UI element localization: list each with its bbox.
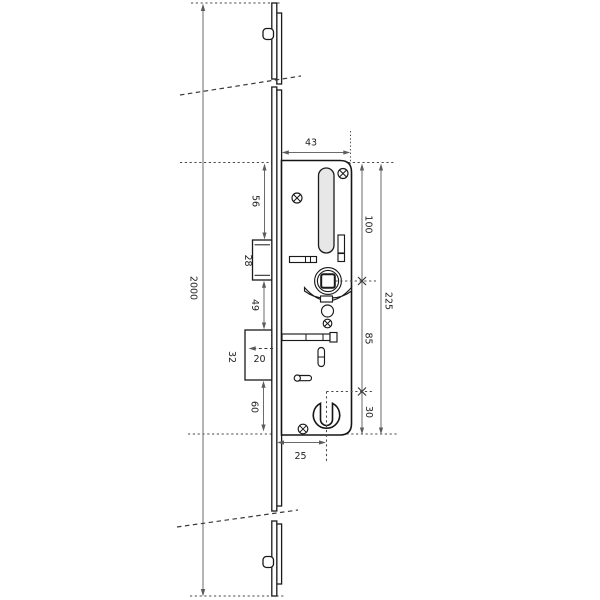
bottom-roller-cam xyxy=(263,557,274,568)
screw-icon xyxy=(292,193,302,203)
dim-label-cylinder-backset: 25 xyxy=(294,451,306,462)
handle-slot xyxy=(319,168,335,253)
faceplate xyxy=(263,3,282,596)
pivot-circle xyxy=(322,305,334,317)
spring-tab xyxy=(321,296,333,302)
guide-pin-upper xyxy=(338,235,345,253)
follower-square-hole xyxy=(321,274,335,288)
deadbolt-block: 20 xyxy=(245,330,273,380)
dim-left-chain: 56 28 49 32 60 xyxy=(226,164,267,432)
backplate-top-segment xyxy=(277,13,282,84)
drawing-canvas: 2000 56 28 49 32 60 43 100 85 30 xyxy=(0,0,600,600)
screw-icon xyxy=(338,169,348,179)
latch-bar xyxy=(290,257,317,263)
dim-label-faceplate-length: 2000 xyxy=(187,276,198,300)
dim-label-deadbolt-throw: 20 xyxy=(253,354,265,365)
dim-label-cylinder-to-bottom: 30 xyxy=(363,406,374,418)
lock-technical-drawing: 2000 56 28 49 32 60 43 100 85 30 xyxy=(0,0,600,600)
lock-case xyxy=(282,161,352,436)
dim-label-top-to-follower: 100 xyxy=(362,215,373,233)
dim-label-latch-height: 28 xyxy=(242,254,253,266)
dim-label-case-height: 225 xyxy=(382,292,393,310)
faceplate-top-segment xyxy=(272,3,277,79)
dim-label-follower-to-cylinder: 85 xyxy=(362,332,373,344)
faceplate-middle-segment xyxy=(272,87,277,511)
dim-label-top-to-latch: 56 xyxy=(249,195,260,207)
dim-label-deadbolt-height: 32 xyxy=(226,351,237,363)
top-roller-cam xyxy=(263,29,274,40)
screw-icon xyxy=(323,319,332,328)
backplate-bottom-segment xyxy=(277,524,282,584)
guide-pin-lower xyxy=(338,254,345,262)
deadbolt-slide xyxy=(282,333,337,343)
latch-bolt-block xyxy=(253,240,272,280)
dim-label-case-width: 43 xyxy=(305,138,317,149)
dim-cylinder-backset: 25 xyxy=(277,440,326,462)
dim-case-width: 43 xyxy=(282,138,351,155)
pin-circle xyxy=(294,375,300,381)
break-line-top xyxy=(180,76,301,95)
dim-right-chain: 100 85 30 225 xyxy=(358,164,393,435)
dim-label-deadbolt-to-case-bottom: 60 xyxy=(248,401,259,413)
dim-label-latch-to-deadbolt: 49 xyxy=(249,299,260,311)
screw-icon xyxy=(298,424,308,434)
